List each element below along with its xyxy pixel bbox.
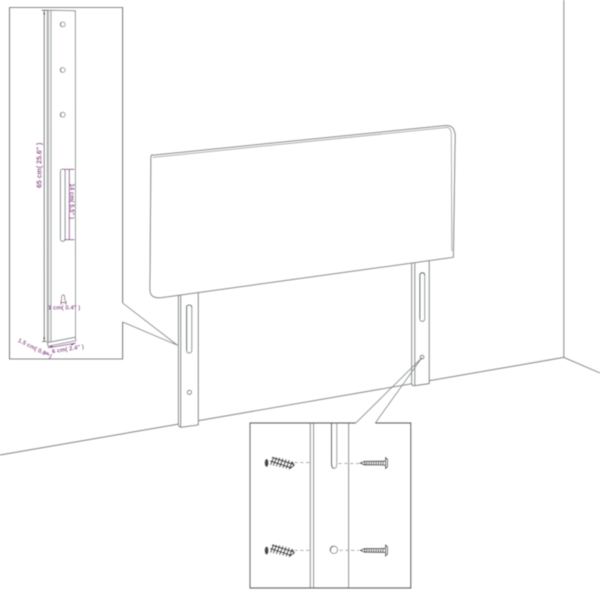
svg-text:1 cm( 0.4″ ): 1 cm( 0.4″ ) — [48, 305, 80, 311]
svg-text:65 cm( 25.6″ ): 65 cm( 25.6″ ) — [36, 143, 43, 188]
svg-text:14 cm( 5.5″ ): 14 cm( 5.5″ ) — [68, 184, 74, 220]
